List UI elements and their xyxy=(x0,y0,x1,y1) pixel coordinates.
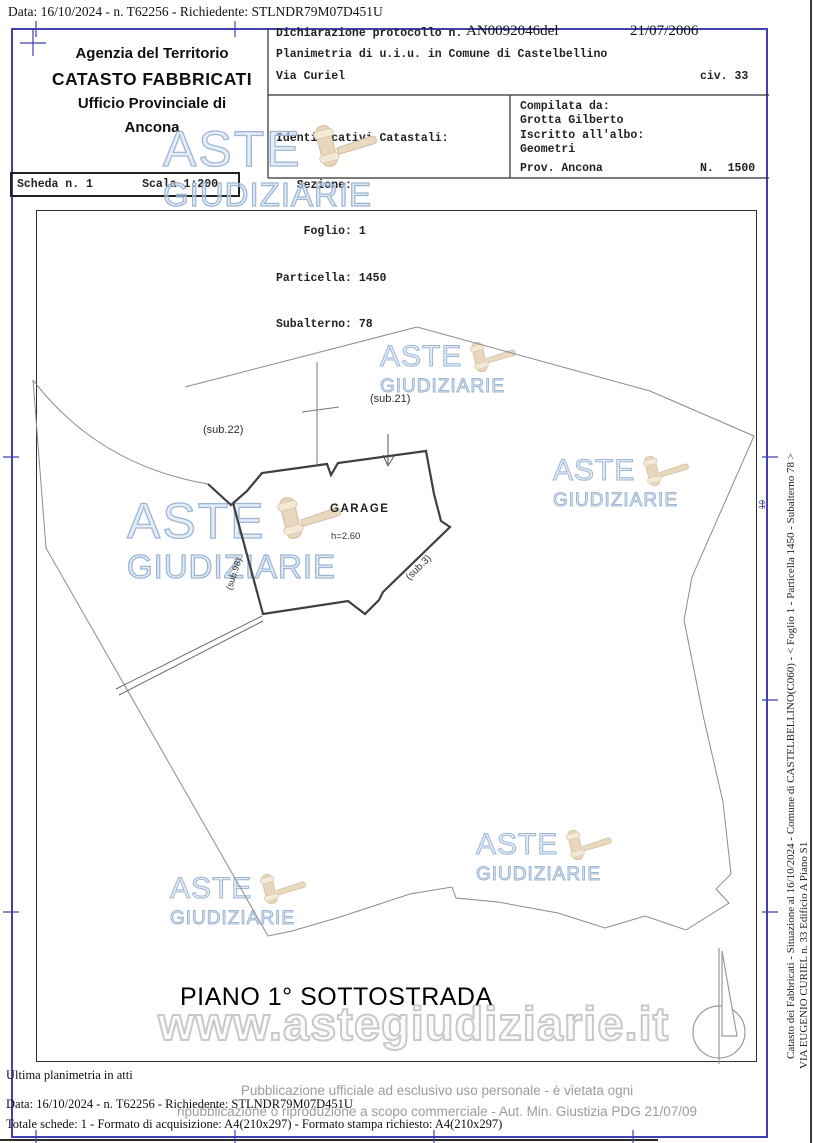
scan-header-line: Data: 16/10/2024 - n. T62256 - Richieden… xyxy=(8,4,383,20)
label-room-height: h=2.60 xyxy=(331,531,360,542)
compiler-block-albo: Iscritto all'albo: Geometri xyxy=(520,129,644,157)
agency-line3: Ufficio Provinciale di xyxy=(38,92,266,116)
agency-line1: Agenzia del Territorio xyxy=(38,42,266,66)
agency-line4: Ancona xyxy=(38,116,266,140)
albo-label: Iscritto all'albo: xyxy=(520,129,644,143)
footer-totale-line: Totale schede: 1 - Formato di acquisizio… xyxy=(6,1117,502,1132)
side-caption-line1: Catasto dei Fabbricati - Situazione al 1… xyxy=(785,419,797,1059)
catastal-foglio: Foglio: 1 xyxy=(276,224,449,240)
footer-ultima: Ultima planimetria in atti xyxy=(6,1068,133,1083)
agency-line2: CATASTO FABBRICATI xyxy=(38,66,266,92)
side-caption-line2: VIA EUGENIO CURIEL n. 33 Edificio A Pian… xyxy=(798,809,810,1069)
margin-stamp: 10 xyxy=(758,500,767,509)
compiler-prov: Prov. Ancona xyxy=(520,162,603,175)
scala-value: Scala 1:200 xyxy=(142,178,218,191)
catastal-sezione: Sezione: xyxy=(276,178,449,194)
compiler-block-top: Compilata da: Grotta Gilberto xyxy=(520,100,624,128)
declaration-civic-number: civ. 33 xyxy=(700,70,748,83)
compiler-number: N. 1500 xyxy=(700,162,755,175)
declaration-date: 21/07/2006 xyxy=(630,23,698,40)
declaration-subject: Planimetria di u.i.u. in Comune di Caste… xyxy=(276,48,607,61)
catastal-particella: Particella: 1450 xyxy=(276,271,449,287)
agency-title-block: Agenzia del Territorio CATASTO FABBRICAT… xyxy=(38,42,266,140)
disclaimer-line1: Pubblicazione ufficiale ad esclusivo uso… xyxy=(172,1083,702,1098)
disclaimer-line2: ripubblicazione o riproduzione a scopo c… xyxy=(172,1104,702,1119)
catastal-title: Identificativi Catastali: xyxy=(276,131,449,147)
declaration-protocol: AN0092046del xyxy=(466,23,559,40)
label-sub22: (sub.22) xyxy=(203,424,243,436)
compiler-label: Compilata da: xyxy=(520,100,624,114)
scan-bottom-edge xyxy=(0,1139,658,1141)
label-garage: GARAGE xyxy=(330,503,389,515)
declaration-street: Via Curiel xyxy=(276,70,345,83)
catastal-identifiers-block: Identificativi Catastali: Sezione: Fogli… xyxy=(276,100,449,348)
floor-title: PIANO 1° SOTTOSTRADA xyxy=(180,983,493,1012)
catastal-subalterno: Subalterno: 78 xyxy=(276,317,449,333)
scheda-number: Scheda n. 1 xyxy=(17,178,93,191)
scheda-scala-bar: Scheda n. 1 Scala 1:200 xyxy=(10,172,240,197)
declaration-label: Dichiarazione protocollo n. xyxy=(276,27,462,40)
compiler-name: Grotta Gilberto xyxy=(520,114,624,128)
label-sub21: (sub.21) xyxy=(370,393,410,405)
scan-right-edge xyxy=(810,0,812,1143)
albo-value: Geometri xyxy=(520,143,644,157)
cadastral-floorplan-document: { "header": { "scan_line": "Data: 16/10/… xyxy=(0,0,813,1143)
